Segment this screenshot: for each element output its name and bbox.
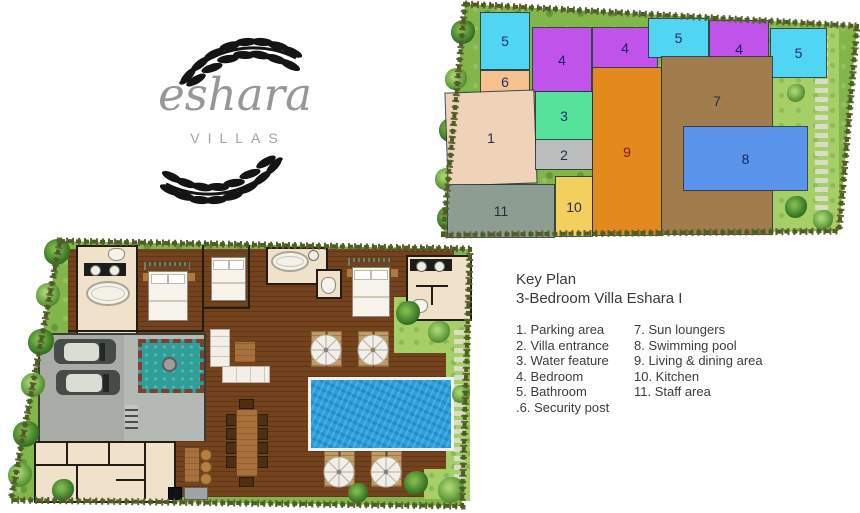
car-icon bbox=[54, 339, 116, 364]
legend-item: 2. Villa entrance bbox=[516, 338, 634, 354]
toilet-icon bbox=[108, 248, 125, 261]
brand-subtitle: VILLAS bbox=[158, 130, 312, 146]
toilet-icon bbox=[321, 277, 336, 294]
wall bbox=[248, 245, 250, 307]
umbrella-icon bbox=[369, 455, 403, 489]
key-plan-zone-water-feature: 3 bbox=[536, 92, 592, 140]
legend-title: Key Plan bbox=[516, 270, 856, 289]
sink-icon bbox=[416, 261, 427, 272]
chair-icon bbox=[239, 399, 254, 409]
legend-column-1: 1. Parking area2. Villa entrance3. Water… bbox=[516, 322, 634, 415]
legend-item: 9. Living & dining area bbox=[634, 353, 763, 369]
legend-item: 11. Staff area bbox=[634, 384, 763, 400]
umbrella-icon bbox=[309, 333, 343, 367]
chair-icon bbox=[257, 456, 268, 468]
kitchen-appliance bbox=[168, 487, 182, 500]
key-plan-zone-kitchen: 10 bbox=[556, 177, 592, 236]
bed-icon bbox=[352, 267, 390, 317]
key-plan-zone-bedroom: 4 bbox=[533, 28, 591, 91]
sink-icon bbox=[308, 250, 319, 261]
nightstand bbox=[390, 268, 399, 278]
legend-item: 1. Parking area bbox=[516, 322, 634, 338]
wall bbox=[144, 441, 146, 499]
wall bbox=[202, 245, 204, 331]
key-plan-zone-swimming-pool: 8 bbox=[684, 127, 807, 190]
key-plan-zone-security-post: 6 bbox=[481, 71, 529, 93]
legend-item: 4. Bedroom bbox=[516, 369, 634, 385]
key-plan-zone-parking: 1 bbox=[445, 90, 536, 185]
umbrella-icon bbox=[322, 455, 356, 489]
key-plan-zone-bathroom: 5 bbox=[771, 29, 826, 77]
floor-plan bbox=[8, 233, 478, 511]
wall bbox=[76, 466, 78, 499]
key-plan-map: 5 6 4 4 5 4 5 1 3 2 7 9 8 11 10 bbox=[441, 0, 860, 246]
legend-item: 10. Kitchen bbox=[634, 369, 763, 385]
stool-icon bbox=[200, 461, 212, 473]
brand-name: eshara bbox=[158, 68, 312, 121]
nightstand bbox=[187, 272, 196, 282]
legend-subtitle: 3-Bedroom Villa Eshara I bbox=[516, 289, 856, 308]
dining-table bbox=[236, 409, 258, 477]
wall bbox=[66, 441, 68, 466]
car-icon bbox=[56, 370, 120, 395]
umbrella-icon bbox=[356, 333, 390, 367]
entrance-steps bbox=[125, 405, 138, 429]
chair-icon bbox=[257, 414, 268, 426]
key-plan-zone-living-dining: 9 bbox=[593, 68, 661, 235]
key-plan-zone-bathroom: 5 bbox=[649, 19, 708, 57]
sink-icon bbox=[109, 265, 120, 276]
sofa-icon bbox=[222, 366, 270, 383]
wall bbox=[204, 307, 250, 309]
brand-logo: eshara VILLAS bbox=[158, 30, 312, 218]
shower-wall bbox=[431, 287, 433, 305]
stone-path bbox=[454, 327, 465, 479]
wall bbox=[68, 330, 204, 332]
stool-icon bbox=[200, 449, 212, 461]
sofa-icon bbox=[210, 329, 230, 367]
bed-icon bbox=[148, 271, 188, 321]
wall bbox=[34, 464, 146, 466]
chair-icon bbox=[239, 477, 254, 487]
kitchen-appliance bbox=[184, 487, 208, 500]
legend-column-2: 7. Sun loungers8. Swimming pool9. Living… bbox=[634, 322, 763, 415]
wall bbox=[108, 441, 110, 466]
key-plan-zone-bathroom: 5 bbox=[481, 13, 529, 69]
legend-item: 7. Sun loungers bbox=[634, 322, 763, 338]
legend-item: 5. Bathroom bbox=[516, 384, 634, 400]
coffee-table bbox=[234, 341, 256, 363]
chair-icon bbox=[257, 428, 268, 440]
key-plan-legend: Key Plan 3-Bedroom Villa Eshara I 1. Par… bbox=[516, 270, 856, 415]
kitchen-island bbox=[184, 447, 200, 483]
key-plan-zone-villa-entrance: 2 bbox=[536, 140, 592, 169]
sink-icon bbox=[90, 265, 101, 276]
swimming-pool bbox=[308, 377, 454, 451]
bathtub-icon bbox=[271, 251, 309, 272]
page: { "logo": { "brand": "eshara", "subtitle… bbox=[0, 0, 860, 513]
stool-icon bbox=[200, 473, 212, 485]
bathtub-icon bbox=[86, 281, 130, 306]
wall bbox=[116, 479, 146, 481]
key-plan-zone-bedroom: 4 bbox=[593, 28, 657, 68]
sink-icon bbox=[434, 261, 445, 272]
legend-item: 8. Swimming pool bbox=[634, 338, 763, 354]
key-plan-zone-staff-area: 11 bbox=[448, 185, 554, 237]
chair-icon bbox=[257, 442, 268, 454]
legend-item: .6. Security post bbox=[516, 400, 634, 416]
laurel-branch-bottom-icon bbox=[160, 148, 290, 210]
bed-icon bbox=[211, 257, 246, 301]
water-feature-ornament bbox=[162, 357, 177, 372]
legend-item: 3. Water feature bbox=[516, 353, 634, 369]
